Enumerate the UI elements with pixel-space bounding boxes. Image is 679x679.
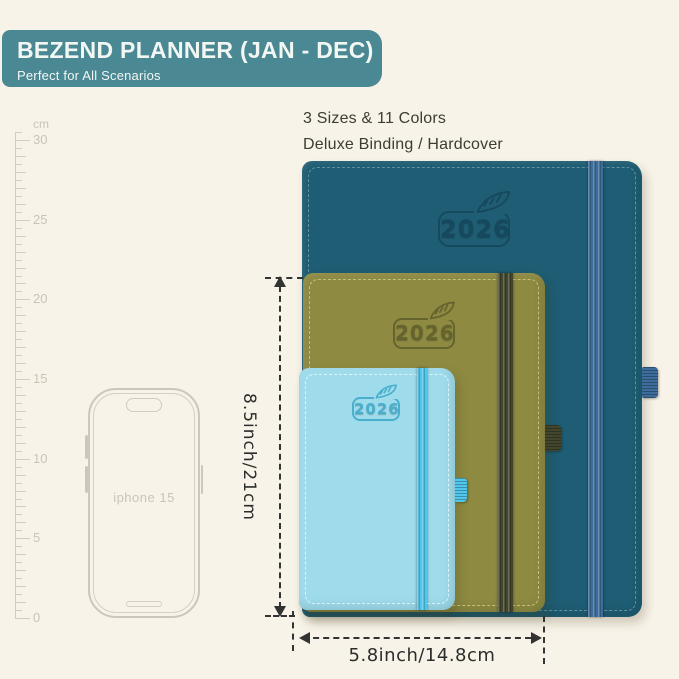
phone-power-button [201,465,204,494]
notebook-small-lightblue: 2026 [299,368,455,610]
ruler-number-label: 30 [33,132,47,147]
highlight-binding: Deluxe Binding / Hardcover [303,132,503,158]
ruler-tick [15,427,26,428]
feather-icon [474,190,512,214]
ruler-tick [15,268,26,269]
ruler-tick [15,291,22,292]
phone-speaker-bar [126,601,162,607]
ruler-tick [15,459,30,460]
ruler-tick [15,578,22,579]
ruler-tick [15,395,26,396]
ruler: cm 302520151050 [15,120,85,630]
feather-icon [428,301,456,320]
ruler-tick [15,483,22,484]
height-dimension-line [279,286,281,608]
year-logo: 2026 [393,318,455,349]
ruler-number-label: 10 [33,451,47,466]
ruler-tick [15,379,30,380]
year-text: 2026 [352,397,400,421]
ruler-tick [15,172,26,173]
product-image: BEZEND PLANNER (JAN - DEC) Perfect for A… [0,0,679,679]
ruler-tick [15,339,22,340]
year-text: 2026 [393,318,455,349]
ruler-tick [15,594,22,595]
ruler-tick [15,132,22,133]
ruler-tick [15,562,22,563]
height-extension-top [265,277,303,279]
ruler-tick [15,180,22,181]
width-extension-left [292,611,294,651]
ruler-tick [15,252,26,253]
highlight-sizes-colors: 3 Sizes & 11 Colors [303,106,503,132]
phone-outline: iphone 15 [88,388,200,618]
ruler-tick [15,276,22,277]
ruler-tick [15,140,30,141]
page-title: BEZEND PLANNER (JAN - DEC) [17,37,382,64]
ruler-tick [15,347,26,348]
ruler-tick [15,530,22,531]
ruler-tick [15,156,26,157]
ruler-tick [15,443,26,444]
year-logo: 2026 [352,397,400,421]
height-extension-bottom [265,615,295,617]
page-subtitle: Perfect for All Scenarios [17,68,382,83]
ruler-tick [15,323,22,324]
ruler-number-label: 25 [33,212,47,227]
ruler-tick [15,610,22,611]
ruler-tick [15,220,30,221]
ruler-tick [15,618,30,619]
elastic-band [588,161,603,617]
ruler-tick [15,355,22,356]
ruler-number-label: 15 [33,371,47,386]
ruler-tick [15,554,26,555]
width-dimension-line [303,637,531,639]
ruler-tick [15,411,26,412]
ruler-tick [15,188,26,189]
ruler-number-label: 0 [33,610,40,625]
arrow-left-icon [299,632,310,644]
feature-highlights: 3 Sizes & 11 Colors Deluxe Binding / Har… [303,106,503,158]
phone-volume-button-1 [85,435,88,459]
ruler-tick [15,363,26,364]
ruler-tick [15,299,30,300]
ruler-tick [15,331,26,332]
ruler-tick [15,570,26,571]
feather-icon [374,384,398,399]
ruler-tick [15,236,26,237]
ruler-tick [15,451,22,452]
ruler-number-label: 20 [33,291,47,306]
header-banner: BEZEND PLANNER (JAN - DEC) Perfect for A… [2,30,382,87]
ruler-tick [15,244,22,245]
height-dimension-label: 8.5inch/21cm [239,393,259,521]
ruler-tick [15,307,22,308]
ruler-tick [15,419,22,420]
ruler-tick [15,228,22,229]
ruler-tick [15,467,22,468]
elastic-band [498,273,513,612]
ruler-number-label: 5 [33,530,40,545]
ruler-tick [15,546,22,547]
year-text: 2026 [438,211,510,247]
ruler-tick [15,164,22,165]
ruler-tick [15,499,22,500]
ruler-tick [15,435,22,436]
ruler-tick [15,148,22,149]
ruler-tick [15,522,26,523]
ruler-tick [15,283,26,284]
ruler-tick [15,475,26,476]
ruler-tick [15,491,26,492]
ruler-tick [15,212,22,213]
ruler-tick [15,371,22,372]
width-extension-right [543,616,545,664]
year-logo: 2026 [438,211,510,247]
ruler-tick [15,602,26,603]
ruler-tick [15,387,22,388]
ruler-tick [15,204,26,205]
ruler-tick [15,586,26,587]
ruler-tick [15,315,26,316]
pen-loop [545,425,561,451]
ruler-tick [15,538,30,539]
ruler-tick [15,514,22,515]
phone-label: iphone 15 [90,490,198,505]
pen-loop [642,367,658,398]
pen-loop [455,478,467,502]
phone-volume-button-2 [85,466,88,493]
width-dimension-label: 5.8inch/14.8cm [322,645,522,666]
ruler-tick [15,196,22,197]
elastic-band [417,368,427,610]
ruler-tick [15,506,26,507]
ruler-unit-label: cm [33,117,49,131]
ruler-tick [15,403,22,404]
arrow-right-icon [531,632,542,644]
ruler-tick [15,260,22,261]
phone-dynamic-island [126,398,162,412]
